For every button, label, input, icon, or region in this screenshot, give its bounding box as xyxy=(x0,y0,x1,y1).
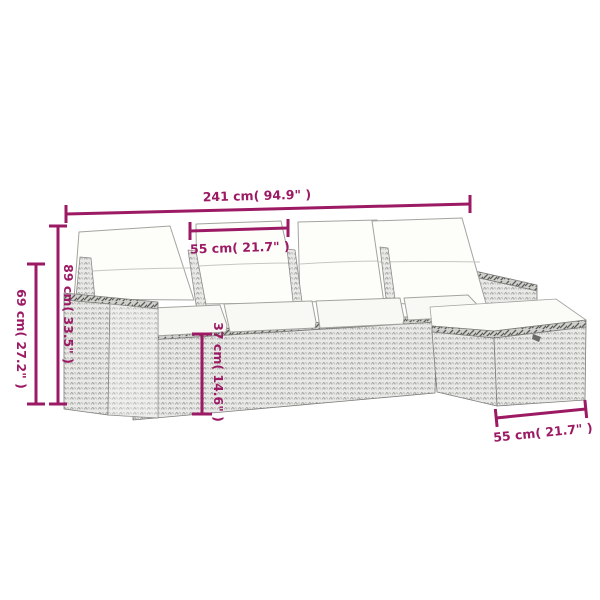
dimension-label: 69 cm( 27.2" ) xyxy=(14,289,29,389)
product-dimension-diagram: 241 cm( 94.9" ) 55 cm( 21.7" ) 89 cm( 33… xyxy=(0,0,600,600)
dimension-label: 55 cm( 21.7" ) xyxy=(190,238,290,256)
dimension-label: 55 cm( 21.7" ) xyxy=(493,420,594,445)
dimension-tick xyxy=(495,409,497,427)
product-diagram-svg: 241 cm( 94.9" ) 55 cm( 21.7" ) 89 cm( 33… xyxy=(0,0,600,600)
ottoman-left-face xyxy=(432,332,497,406)
ottoman xyxy=(430,299,586,406)
dimension-line xyxy=(66,204,470,214)
seat-cushion xyxy=(316,298,404,328)
dim-armrest-height: 69 cm( 27.2" ) xyxy=(14,264,45,404)
dim-total-width: 241 cm( 94.9" ) xyxy=(66,187,470,223)
dimension-label: 37 cm( 14.6" ) xyxy=(211,322,226,422)
dimension-label: 89 cm( 33.5" ) xyxy=(61,264,76,364)
seat-cushion xyxy=(224,301,316,332)
back-cushion xyxy=(196,221,299,304)
sofa-illustration xyxy=(64,218,586,420)
dimension-line xyxy=(496,409,586,418)
dimension-label: 241 cm( 94.9" ) xyxy=(203,187,312,205)
dimension-tick xyxy=(585,400,587,418)
left-armrest xyxy=(64,293,158,418)
dim-ottoman-width: 55 cm( 21.7" ) xyxy=(491,400,594,445)
back-cushions xyxy=(74,220,391,304)
